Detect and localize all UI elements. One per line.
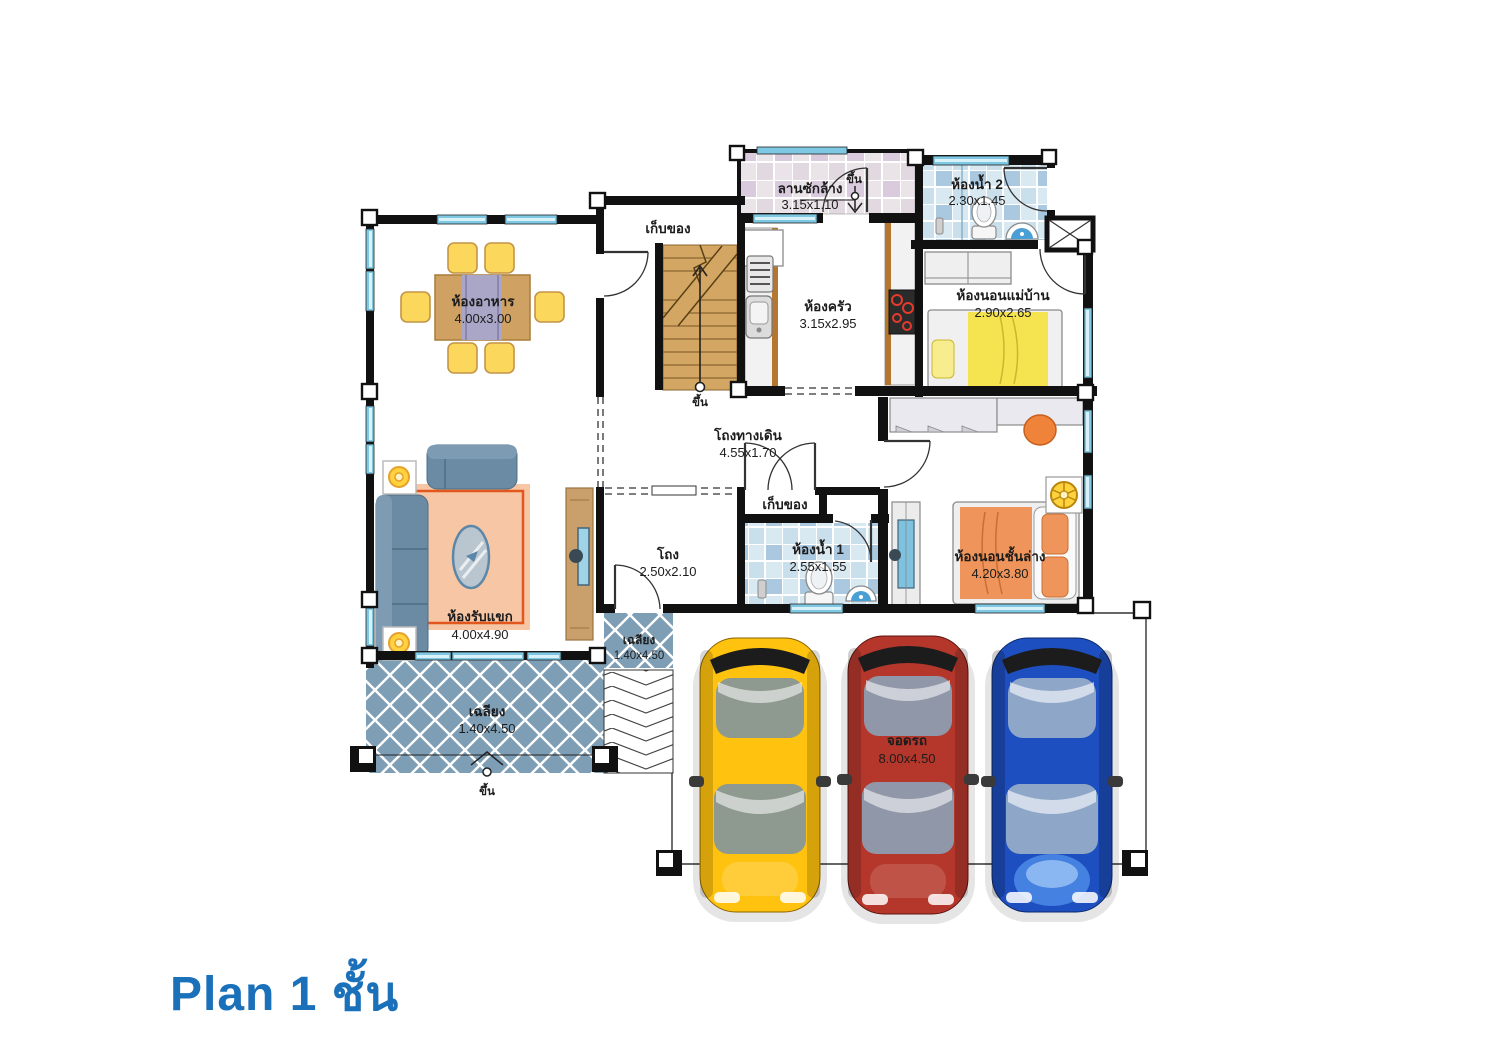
- tv-cabinet: [566, 488, 593, 640]
- living-dims: 4.00x4.90: [451, 627, 508, 642]
- laundry-dims: 3.15x1.10: [781, 197, 838, 212]
- bathroom2-label: ห้องน้ำ 2: [951, 174, 1003, 192]
- bedroom-chair: [1024, 415, 1056, 445]
- porch-up-label: ขึ้น: [479, 782, 495, 798]
- bathroom1-dims: 2.55x1.55: [789, 559, 846, 574]
- lamp-table-top: [383, 461, 416, 494]
- hall-label: โถง: [656, 545, 679, 562]
- bath2-bin: [936, 218, 943, 234]
- dining-dims: 4.00x3.00: [454, 311, 511, 326]
- bedroom-dresser: [890, 398, 997, 432]
- porch-marker-left: [350, 746, 376, 772]
- kitchen-dims: 3.15x2.95: [799, 316, 856, 331]
- maid-bed: [928, 310, 1062, 388]
- kitchen-grille: [747, 256, 773, 292]
- cars: [689, 636, 1123, 924]
- hall-dims: 2.50x2.10: [639, 564, 696, 579]
- bath1-bin: [758, 580, 766, 598]
- porch-side-dims: 1.40x4.50: [614, 650, 665, 662]
- ceiling-fan: [1046, 477, 1082, 513]
- kitchen-sink: [746, 296, 772, 338]
- coffee-table: [453, 526, 489, 588]
- blue-car: [981, 638, 1123, 922]
- red-car: [837, 636, 979, 924]
- sofa-small: [427, 445, 517, 489]
- storage-top-label: เก็บของ: [645, 219, 690, 236]
- living-label: ห้องรับแขก: [447, 609, 513, 624]
- maid-bedroom-label: ห้องนอนแม่บ้าน: [956, 288, 1050, 303]
- corridor-dims: 4.55x1.70: [719, 445, 776, 460]
- corridor-label: โถงทางเดิน: [713, 426, 782, 443]
- storage-mid-label: เก็บของ: [762, 495, 807, 512]
- floor-plan-drawing: ลานซักล้าง 3.15x1.10 ขึ้น ห้องน้ำ 2 2.30…: [0, 0, 1497, 1061]
- porch-front-dims: 1.40x4.50: [458, 721, 515, 736]
- bathroom1-label: ห้องน้ำ 1: [792, 539, 844, 557]
- plan-title: Plan 1 ชั้น: [170, 956, 399, 1032]
- porch-side-label: เฉลียง: [623, 633, 656, 647]
- bedroom-ground-label: ห้องนอนชั้นล่าง: [955, 546, 1046, 564]
- parking-dims: 8.00x4.50: [878, 751, 935, 766]
- staircase: [663, 245, 737, 392]
- porch-marker-right: [592, 746, 618, 772]
- laundry-label: ลานซักล้าง: [778, 181, 843, 196]
- bedroom-ground-dims: 4.20x3.80: [971, 566, 1028, 581]
- floor-plan-page: ลานซักล้าง 3.15x1.10 ขึ้น ห้องน้ำ 2 2.30…: [0, 0, 1497, 1061]
- porch-front-label: เฉลียง: [469, 704, 506, 719]
- dining-label: ห้องอาหาร: [451, 294, 515, 309]
- bedroom-closet: [889, 502, 920, 606]
- bathroom2-dims: 2.30x1.45: [948, 193, 1005, 208]
- garage-marker-left: [656, 850, 682, 876]
- stove: [889, 290, 915, 334]
- maid-bedroom-dims: 2.90x2.65: [974, 305, 1031, 320]
- yellow-car: [689, 638, 831, 922]
- parking-label: จอดรถ: [887, 733, 927, 748]
- kitchen-label: ห้องครัว: [804, 299, 851, 314]
- garage-marker-right: [1122, 850, 1148, 876]
